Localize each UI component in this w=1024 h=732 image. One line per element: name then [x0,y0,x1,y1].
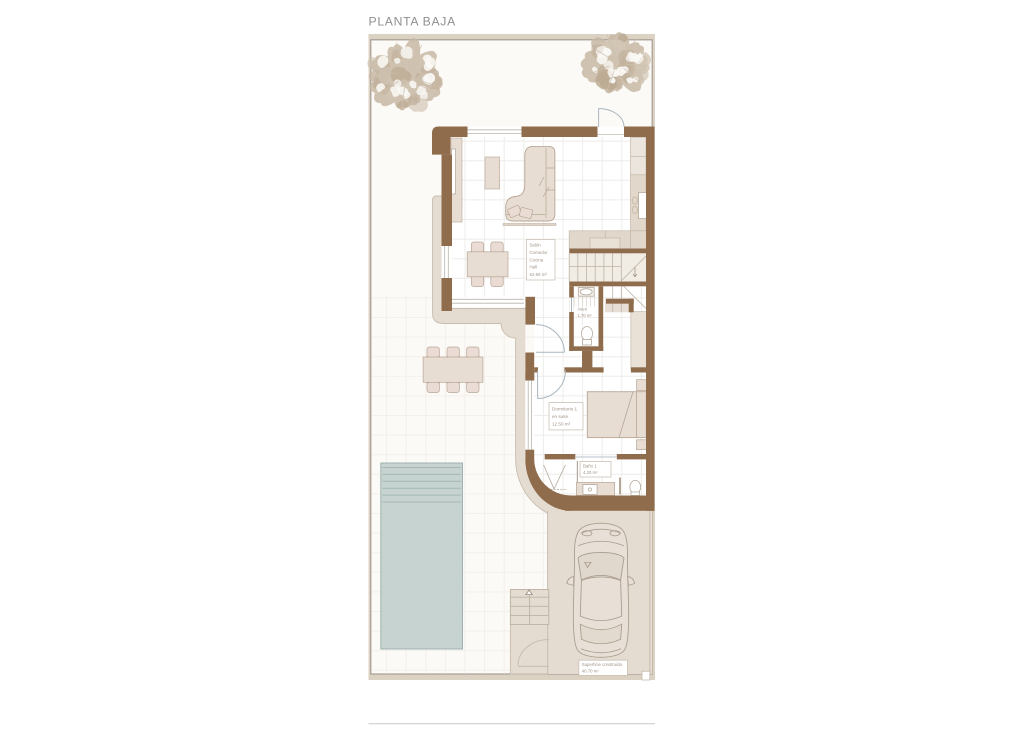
svg-text:Cocina: Cocina [530,257,544,262]
svg-text:PLANTA BAJA: PLANTA BAJA [369,15,457,29]
svg-text:1,70 m²: 1,70 m² [578,313,593,318]
svg-text:Comedor: Comedor [530,250,549,255]
svg-text:en suite: en suite [552,414,569,419]
svg-text:Baño 1: Baño 1 [583,464,597,469]
svg-text:Superficie construida: Superficie construida [582,662,623,667]
svg-text:Aseo: Aseo [578,307,588,312]
svg-text:40.70 m²: 40.70 m² [582,669,600,674]
svg-text:12.50 m²: 12.50 m² [552,421,571,426]
svg-text:4.20 m²: 4.20 m² [583,470,598,475]
svg-text:52.60 m²: 52.60 m² [530,272,548,277]
svg-text:Dormitorio 1: Dormitorio 1 [552,407,577,412]
svg-text:Salón: Salón [530,243,542,248]
svg-text:Hall: Hall [530,265,538,270]
